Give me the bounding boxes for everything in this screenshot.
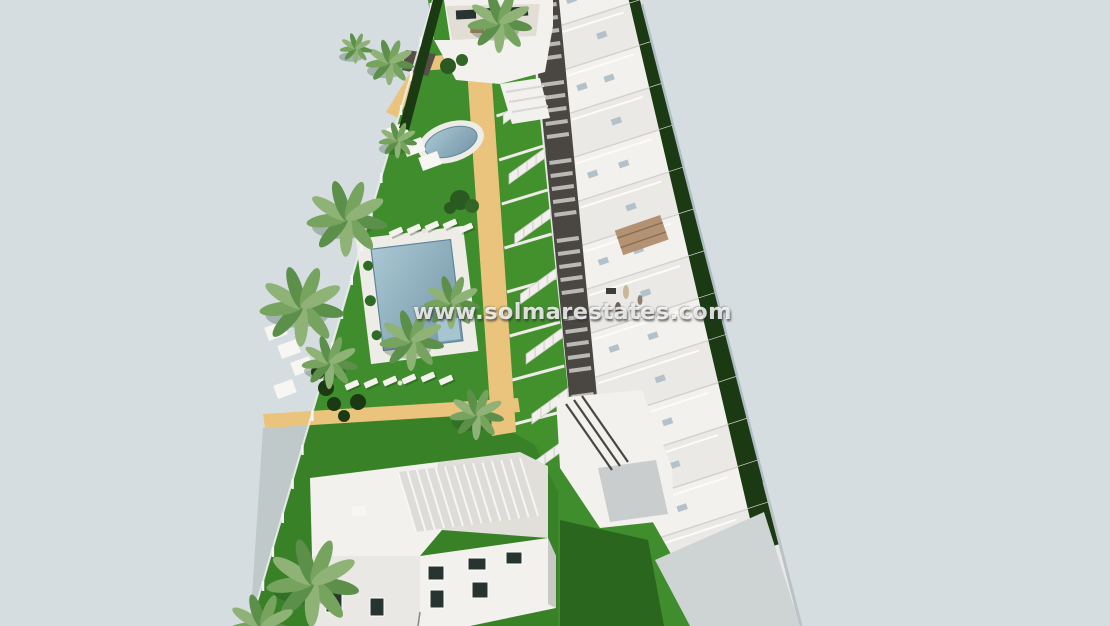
fence-post — [351, 275, 353, 285]
cypress — [338, 410, 350, 422]
window — [430, 590, 444, 608]
outdoor-kitchen — [606, 288, 616, 294]
fence-post — [272, 547, 274, 557]
fence-post — [301, 445, 303, 455]
shrub — [456, 54, 468, 66]
rear-courtyard — [598, 460, 668, 522]
cypress — [350, 394, 366, 410]
watermark: www.solmarestates.com — [413, 299, 693, 325]
shrub — [440, 58, 456, 74]
fence-post — [291, 479, 293, 489]
villa-chimney — [352, 506, 366, 516]
window — [370, 598, 384, 616]
window — [472, 582, 488, 598]
window — [468, 558, 486, 570]
window — [428, 566, 444, 580]
shrub — [465, 199, 479, 213]
cypress — [327, 397, 341, 411]
top-building-window — [456, 9, 476, 19]
side-table — [398, 381, 403, 386]
fence-post — [410, 71, 412, 81]
window — [506, 552, 522, 564]
parasol — [273, 379, 297, 399]
fence-post — [311, 411, 313, 421]
side-table — [422, 229, 427, 234]
fence-post — [380, 173, 382, 183]
person — [623, 285, 629, 299]
render-canvas: www.solmarestates.com — [0, 0, 1110, 626]
fence-post — [282, 513, 284, 523]
fence-post — [400, 105, 402, 115]
shrub — [444, 202, 456, 214]
fence-post — [262, 581, 264, 591]
